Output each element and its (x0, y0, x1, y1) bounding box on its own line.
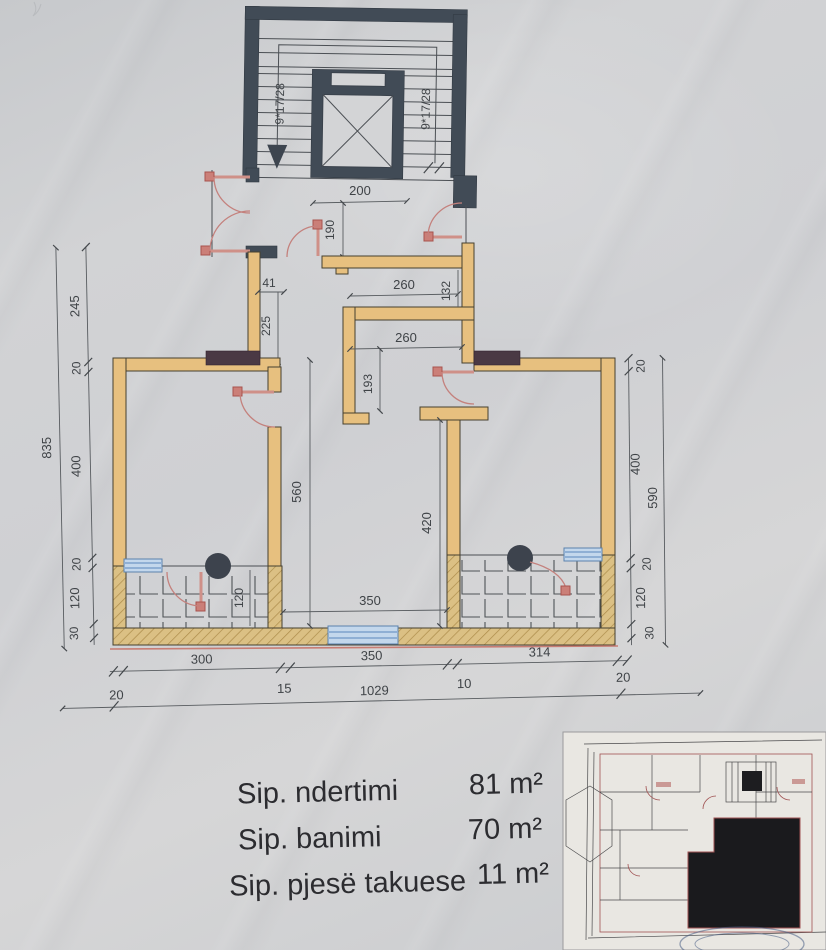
balcony-right (447, 545, 602, 628)
dim-left-120: 120 (67, 587, 82, 609)
paper-smudge (33, 2, 41, 16)
scanned-floor-plan: { "drawing": { "stairwell": { "flight_la… (0, 0, 826, 950)
key-plan-unit-mark-right (792, 779, 805, 784)
corridor-stub-wall (343, 307, 355, 413)
stair-flight-label-left: 9*17/28 (273, 83, 288, 125)
dim-bottom-20a: 20 (109, 687, 124, 702)
entry-hall: 200 190 (201, 168, 466, 258)
key-plan-unit-mark-left (656, 782, 671, 787)
entry-wall-cap-top (246, 168, 259, 182)
dim-right-total-590: 590 (645, 487, 660, 509)
dim-420: 420 (419, 420, 440, 626)
stair-wall-left (243, 6, 260, 178)
dim-41: 41 (258, 276, 284, 292)
dim-120-label: 120 (232, 588, 246, 608)
balcony-right-column (507, 545, 533, 571)
dim-132: 132 (439, 270, 458, 307)
corridor: 41 225 260 132 260 193 (248, 220, 474, 424)
area-table: Sip. ndertimi 81 m² Sip. banimi 70 m² Si… (227, 767, 550, 902)
dim-225: 225 (259, 292, 278, 362)
balcony-right-divider-wall (447, 555, 460, 628)
bottom-dimension-chain: 300 350 314 20 15 1029 10 20 (62, 641, 701, 712)
corridor-wall-right (462, 243, 474, 363)
balcony-right-window (564, 548, 602, 561)
balcony-left: 120 (124, 553, 282, 628)
dim-left-245: 245 (67, 295, 82, 317)
stair-flight-label-right: 9*17/28 (418, 88, 433, 130)
dim-190-label: 190 (323, 220, 337, 240)
dim-left-400: 400 (68, 455, 83, 477)
elevator (311, 69, 405, 178)
dim-right-120: 120 (633, 587, 648, 609)
dim-right-20a: 20 (634, 359, 648, 373)
dim-entry-depth: 190 (323, 203, 343, 257)
balcony-right-tiles (460, 560, 602, 628)
right-dimension-chain: 20 400 20 120 30 590 (624, 354, 665, 645)
t-wall-stem (447, 420, 460, 555)
corridor-wall-left (248, 252, 260, 362)
dim-left-20a: 20 (69, 361, 83, 375)
balcony-left-column (205, 553, 231, 579)
dim-193: 193 (361, 349, 380, 411)
dim-200-label: 200 (349, 183, 371, 198)
dim-left-total-835: 835 (39, 437, 54, 459)
floor-plan-canvas: 9*17/28 9*17/28 200 190 (0, 0, 826, 950)
dim-bottom-300: 300 (191, 651, 213, 666)
balcony-left-tiles (126, 572, 268, 628)
dim-left-20b: 20 (69, 557, 83, 571)
left-room-door-jamb (268, 367, 281, 392)
corridor-wall-notch (336, 268, 348, 274)
entry-right-door (424, 203, 462, 241)
dim-bottom-15: 15 (277, 681, 292, 696)
corridor-wall-lower (343, 307, 474, 320)
dim-193-label: 193 (361, 374, 375, 394)
corridor-entry-door (287, 220, 322, 257)
dim-right-20b: 20 (640, 557, 654, 571)
elevator-door-slot (331, 73, 385, 87)
dim-260-upper-label: 260 (393, 277, 415, 292)
dim-bottom-350: 350 (361, 648, 383, 663)
corridor-stub-foot (343, 413, 369, 424)
left-dimension-chain: 245 20 400 20 120 30 835 (35, 243, 98, 649)
dim-right-400: 400 (628, 453, 643, 475)
area-row-1-label: Sip. ndertimi (237, 775, 399, 811)
entry-double-door (201, 172, 250, 255)
area-row-2-label: Sip. banimi (238, 821, 382, 856)
stair-wall-top (245, 6, 467, 22)
inner-dimensions: 560 420 350 (283, 360, 447, 626)
area-row-3-label: Sip. pjesë takuese (229, 865, 467, 902)
area-row-1-value: 81 m² (469, 768, 544, 802)
dim-350-inner-label: 350 (359, 593, 381, 608)
left-room-door (233, 387, 275, 427)
right-room-door (433, 367, 474, 404)
right-window-lintel (474, 351, 520, 365)
dim-elevator-width: 200 (313, 183, 407, 203)
dim-bottom-1029: 1029 (360, 683, 389, 699)
dim-132-label: 132 (439, 281, 453, 301)
dim-350-inner: 350 (283, 593, 447, 612)
dim-bottom-20b: 20 (616, 670, 631, 685)
stair-wall-right (451, 15, 468, 178)
key-plan-elevator (742, 771, 762, 791)
dim-225-label: 225 (259, 316, 273, 336)
dim-right-30: 30 (642, 626, 656, 640)
balcony-left-window (124, 559, 162, 572)
t-wall-cap (420, 407, 488, 420)
stairwell: 9*17/28 9*17/28 (242, 6, 479, 208)
dim-left-30: 30 (67, 626, 81, 640)
area-row-2-value: 70 m² (468, 813, 543, 847)
dim-41-label: 41 (262, 276, 276, 290)
dim-bottom-10: 10 (457, 676, 472, 691)
area-row-3-value: 11 m² (477, 857, 550, 891)
dim-560-label: 560 (289, 481, 304, 503)
corridor-wall-top (322, 256, 474, 268)
key-plan-thumbnail (563, 732, 826, 950)
dim-420-label: 420 (419, 512, 434, 534)
dim-260-lower: 260 (350, 330, 462, 349)
dim-560: 560 (289, 360, 310, 626)
left-room-right-wall (268, 427, 281, 566)
left-window-lintel (206, 351, 260, 365)
dim-bottom-314: 314 (529, 644, 551, 659)
dim-260-lower-label: 260 (395, 330, 417, 345)
balcony-left-divider-wall (268, 566, 282, 628)
living-room-window (328, 626, 398, 644)
